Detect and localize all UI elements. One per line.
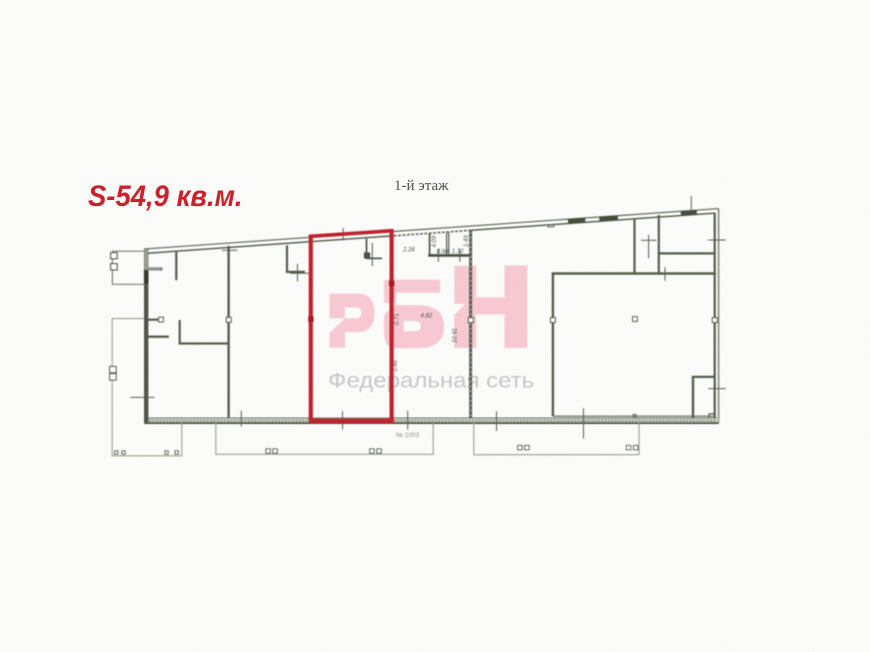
svg-text:4.82: 4.82	[421, 314, 433, 320]
svg-text:2.26: 2.26	[402, 248, 415, 254]
svg-text:Федеральная сеть: Федеральная сеть	[328, 368, 534, 392]
svg-text:1.32: 1.32	[452, 249, 464, 255]
svg-text:0.90: 0.90	[437, 250, 449, 256]
svg-text:№ 1003: № 1003	[396, 432, 420, 439]
svg-text:4.09: 4.09	[432, 235, 438, 247]
svg-text:1.49: 1.49	[464, 235, 470, 247]
svg-text:0.71: 0.71	[395, 313, 401, 325]
svg-text:10.91: 10.91	[453, 328, 459, 343]
svg-text:3.46: 3.46	[393, 360, 399, 372]
